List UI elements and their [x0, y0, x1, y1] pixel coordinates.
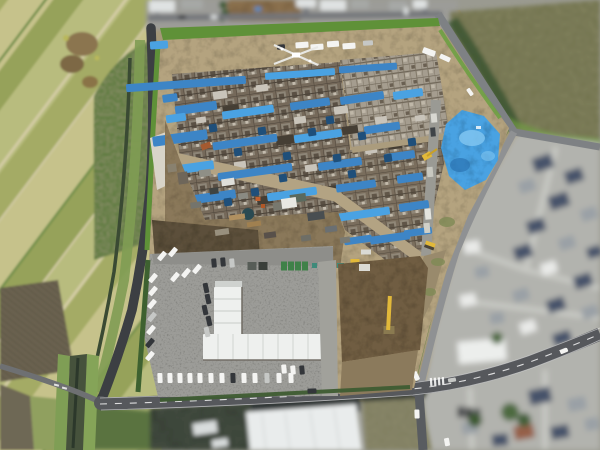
site-material: [361, 250, 371, 255]
blurred-building: [413, 0, 427, 9]
site-material: [256, 197, 261, 201]
tarp-covered-pit: [407, 137, 416, 146]
tree-cluster: [517, 413, 531, 427]
tarp-covered-pit: [307, 127, 316, 136]
site-trailer: [359, 264, 370, 271]
parked-car: [157, 373, 162, 383]
parked-car: [167, 373, 172, 383]
tarp-covered-pit: [325, 115, 334, 124]
waste-container: [281, 262, 287, 271]
shrub: [63, 35, 69, 41]
tarp-covered-pit: [332, 153, 341, 162]
tarp-covered-pit: [383, 153, 392, 162]
shrub: [95, 56, 100, 61]
parked-car: [208, 373, 213, 383]
tarp-highlight: [481, 151, 495, 161]
parked-car: [197, 373, 202, 383]
parked-car: [241, 373, 246, 383]
waste-container: [259, 262, 268, 270]
aerial-photo: [0, 0, 600, 450]
work-truck: [327, 41, 339, 48]
grass-patch: [439, 217, 455, 227]
site-material: [424, 223, 431, 233]
tarp-covered-pit: [347, 169, 356, 178]
tarp-covered-pit: [278, 173, 287, 182]
bare-soil-patch: [60, 55, 84, 73]
tree: [491, 332, 503, 344]
site-material: [425, 208, 432, 219]
road-car: [307, 388, 316, 393]
parked-car: [220, 257, 226, 266]
crane-detail: [309, 60, 312, 63]
house-roof: [584, 417, 600, 431]
tarp-highlight: [459, 130, 485, 146]
house-roof: [458, 407, 465, 418]
site-material: [261, 204, 265, 208]
blurred-building: [404, 7, 408, 15]
site-material: [177, 171, 189, 184]
parked-car: [252, 373, 257, 383]
blurred-building: [149, 0, 175, 12]
work-truck: [295, 42, 308, 49]
grass-patch: [431, 258, 445, 266]
office-roof-cap: [215, 281, 242, 288]
aerial-photo-canvas: [0, 0, 600, 450]
parked-car: [229, 258, 235, 267]
blurred-building: [211, 15, 218, 19]
parked-car: [187, 373, 192, 383]
tree-cluster: [501, 403, 519, 421]
bare-soil-patch: [82, 76, 98, 88]
parked-car: [281, 364, 287, 373]
parked-car: [276, 373, 281, 383]
site-material: [427, 167, 434, 177]
site-material: [431, 113, 438, 122]
waste-container: [248, 262, 257, 270]
tarp-covered-pit: [223, 197, 232, 206]
tarp-covered-pit: [257, 126, 266, 135]
cleared-dirt-field: [338, 256, 428, 362]
tarp-shadow: [450, 158, 470, 172]
house-roof: [492, 433, 509, 446]
tarp-covered-pit: [250, 187, 259, 196]
waste-container: [295, 262, 301, 271]
parked-car: [230, 373, 235, 383]
tarp-covered-pit: [357, 131, 366, 140]
crane-cab: [292, 53, 300, 58]
tree: [468, 413, 482, 427]
site-material: [281, 197, 297, 209]
tarp-covered-pit: [282, 151, 291, 160]
bare-soil-patch: [66, 32, 98, 56]
waste-container: [288, 262, 294, 271]
tree: [219, 1, 227, 9]
blurred-building: [178, 15, 186, 19]
north-road: [148, 14, 442, 18]
gate-cabin: [312, 263, 317, 268]
work-truck: [342, 43, 355, 50]
site-material: [430, 127, 436, 136]
blurred-building: [296, 0, 316, 8]
parked-car: [299, 365, 305, 374]
site-material: [167, 163, 177, 172]
parked-car: [177, 373, 182, 383]
blurred-building: [255, 7, 262, 11]
work-truck: [363, 40, 373, 46]
south-branch-road: [419, 392, 423, 450]
parked-car: [211, 258, 217, 267]
parked-car: [290, 365, 296, 374]
tarp-covered-pit: [208, 123, 217, 132]
blurred-building: [320, 0, 346, 11]
blue-tarp-sheet: [150, 40, 169, 49]
tarp-white-spot: [476, 126, 481, 129]
parked-car: [264, 373, 269, 383]
tarp-covered-pit: [233, 147, 242, 156]
blurred-building: [181, 0, 203, 9]
blurred-building: [351, 0, 369, 9]
waste-container: [302, 262, 308, 271]
crane-detail: [281, 48, 284, 51]
site-material: [209, 187, 219, 194]
parked-car: [219, 373, 224, 383]
road-car: [414, 409, 419, 418]
